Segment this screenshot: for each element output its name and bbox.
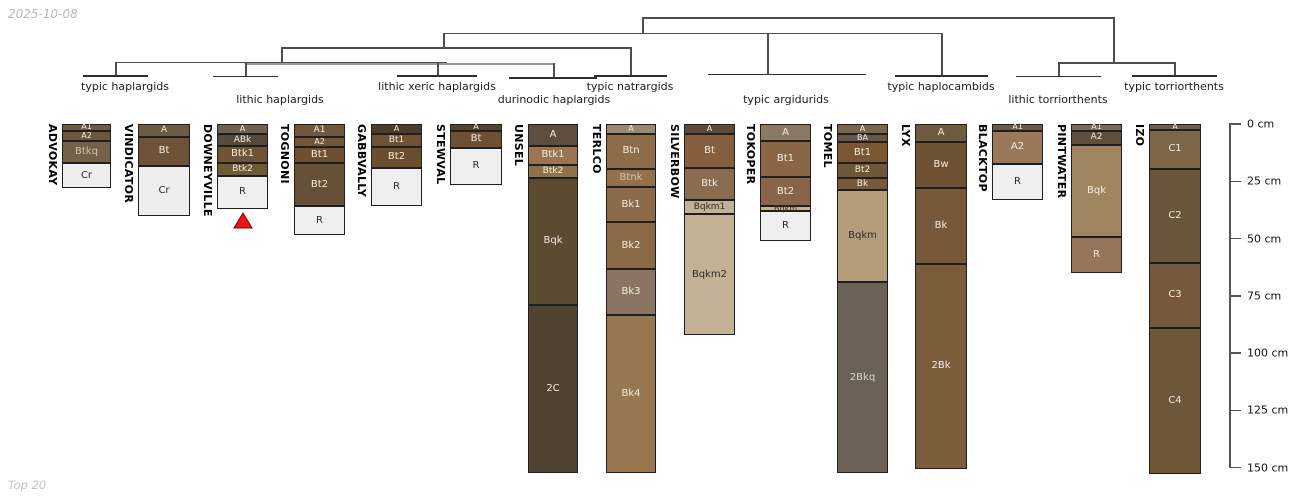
horizon-label: BA [857,134,868,142]
horizon-label: Bt2 [777,187,794,197]
horizon-TERLCO-Bk2: Bk2 [606,222,656,269]
horizon-label: Bqk [544,236,563,246]
column-name-TOGNONI: TOGNONI [278,124,291,184]
horizon-GABBVALLY-R: R [371,168,422,207]
horizon-PINTWATER-Bqk: Bqk [1071,145,1122,238]
dendrogram-link-h-2 [281,47,630,49]
horizon-GABBVALLY-Bt1: Bt1 [371,134,422,147]
horizon-label: A [394,125,399,133]
horizon-IZO-C3: C3 [1149,263,1201,328]
horizon-STEWVAL-A: A [450,124,502,131]
horizon-PINTWATER-A2: A2 [1071,131,1122,145]
horizon-label: Cr [81,171,92,181]
dendrogram-link-h-1 [245,63,553,65]
horizon-label: C4 [1168,396,1181,406]
horizon-label: A [161,126,167,135]
horizon-label: R [782,221,789,231]
horizon-label: Bk4 [621,389,640,399]
horizon-SILVERBOW-Bqkm1: Bqkm1 [684,200,735,215]
horizon-label: R [316,216,323,226]
horizon-label: A [782,128,789,138]
horizon-TOMEL-Bqkm: Bqkm [837,190,888,282]
horizon-DOWNEYVILLE-A: A [217,124,268,134]
horizon-label: A1 [1012,123,1023,131]
horizon-BLACKTOP-A2: A2 [992,131,1043,164]
dendrogram-link-h-5 [1058,62,1174,64]
horizon-TOKOPER-Bt1: Bt1 [760,141,811,176]
red-triangle-marker [233,212,253,229]
horizon-TOKOPER-R: R [760,211,811,241]
group-label-lithic-torriorthents: lithic torriorthents [1008,93,1107,106]
horizon-label: Btkq [75,147,98,157]
group-overline-4 [594,75,667,77]
dendrogram-link-v-11 [1058,62,1060,76]
horizon-label: R [1014,177,1021,187]
depth-axis-tick-0 [1229,123,1241,125]
horizon-ADVOKAY-A1: A1 [62,124,111,131]
horizon-label: Bqkm [774,205,797,213]
horizon-label: Btk1 [542,150,565,160]
horizon-label: Bt1 [311,150,328,160]
horizon-label: Bt [704,146,715,156]
column-name-VINDICATOR: VINDICATOR [122,124,135,203]
horizon-label: Bw [933,160,948,170]
horizon-TOMEL-Bk: Bk [837,178,888,191]
horizon-TOKOPER-Bt2: Bt2 [760,177,811,207]
horizon-TOMEL-2Bkq: 2Bkq [837,282,888,473]
depth-axis-label-150: 150 cm [1247,461,1288,474]
horizon-TERLCO-Bk3: Bk3 [606,269,656,315]
column-name-STEWVAL: STEWVAL [434,124,447,184]
horizon-label: Bk3 [621,287,640,297]
depth-axis-label-125: 125 cm [1247,404,1288,417]
horizon-label: A1 [1091,123,1102,131]
dendrogram-link-h-4 [642,17,1113,19]
horizon-IZO-C1: C1 [1149,130,1201,169]
horizon-label: Bqk [1087,186,1106,196]
horizon-label: 2Bkq [850,373,875,383]
dendrogram-link-v-1 [245,63,247,76]
horizon-label: R [473,161,480,171]
horizon-STEWVAL-R: R [450,148,502,185]
horizon-SILVERBOW-Bqkm2: Bqkm2 [684,214,735,334]
horizon-TOMEL-BA: BA [837,134,888,142]
horizon-label: A [628,125,633,133]
horizon-VINDICATOR-Cr: Cr [138,166,190,215]
horizon-LYX-2Bk: 2Bk [915,264,967,469]
group-label-typic-natrargids: typic natrargids [587,80,674,93]
horizon-label: Bk [857,180,868,189]
horizon-GABBVALLY-A: A [371,124,422,134]
depth-axis-tick-150 [1229,467,1241,469]
depth-axis-label-75: 75 cm [1247,289,1281,302]
horizon-label: Bk2 [621,241,640,251]
dendrogram-link-v-6 [443,33,445,48]
horizon-label: Bt1 [854,148,871,158]
horizon-label: 2Bk [931,361,950,371]
horizon-label: A2 [1091,133,1103,142]
horizon-label: Btn [622,146,639,156]
horizon-label: Bt [159,146,170,156]
group-label-typic-haplocambids: typic haplocambids [887,80,994,93]
dendrogram-link-v-5 [281,47,283,62]
horizon-BLACKTOP-A1: A1 [992,124,1043,131]
horizon-label: 2C [546,384,559,394]
horizon-SILVERBOW-A: A [684,124,735,134]
horizon-TOGNONI-A1: A1 [294,124,345,137]
horizon-label: Bqkm [848,231,877,241]
column-name-PINTWATER: PINTWATER [1055,124,1068,198]
horizon-label: A [707,125,712,133]
dendrogram-link-h-3 [443,33,941,35]
horizon-TERLCO-Bk1: Bk1 [606,187,656,222]
horizon-label: C3 [1168,290,1181,300]
horizon-label: Cr [158,186,169,196]
horizon-UNSEL-Bqk: Bqk [528,178,578,305]
horizon-label: Btk2 [232,165,253,174]
horizon-label: A1 [314,126,326,135]
horizon-IZO-C4: C4 [1149,328,1201,475]
horizon-label: Btk1 [231,149,254,159]
date-label: 2025-10-08 [8,7,78,21]
horizon-label: A [240,125,245,133]
group-label-typic-haplargids: typic haplargids [81,80,169,93]
group-overline-6 [895,75,988,77]
horizon-label: A [860,125,865,133]
group-label-typic-torriorthents: typic torriorthents [1124,80,1224,93]
horizon-LYX-A: A [915,124,967,142]
dendrogram-link-v-9 [642,17,644,33]
horizon-SILVERBOW-Bt: Bt [684,134,735,167]
group-label-lithic-xeric-haplargids: lithic xeric haplargids [378,80,496,93]
depth-axis-tick-100 [1229,352,1241,354]
horizon-TOGNONI-Bt1: Bt1 [294,147,345,163]
horizon-label: R [393,182,400,192]
dendrogram-link-v-12 [1174,62,1176,76]
horizon-TOKOPER-A: A [760,124,811,141]
horizon-label: Bk [935,221,948,231]
horizon-STEWVAL-Bt: Bt [450,131,502,148]
column-name-SILVERBOW: SILVERBOW [668,124,681,199]
horizon-BLACKTOP-R: R [992,164,1043,199]
group-overline-3 [509,77,597,79]
horizon-PINTWATER-R: R [1071,237,1122,272]
horizon-label: C2 [1168,211,1181,221]
group-label-typic-argidurids: typic argidurids [743,93,829,106]
horizon-label: Bt1 [777,154,794,164]
horizon-label: Bt [471,134,482,144]
horizon-ADVOKAY-Cr: Cr [62,163,111,188]
group-overline-0 [83,75,148,77]
horizon-label: C1 [1168,144,1181,154]
horizon-TOMEL-Bt2: Bt2 [837,163,888,178]
column-name-BLACKTOP: BLACKTOP [976,124,989,192]
horizon-VINDICATOR-Bt: Bt [138,137,190,167]
horizon-label: A [1172,123,1177,131]
column-name-ADVOKAY: ADVOKAY [46,124,59,185]
horizon-label: Btk [701,179,718,189]
footer-label: Top 20 [8,478,46,492]
depth-axis-tick-25 [1229,181,1241,183]
horizon-UNSEL-A: A [528,124,578,146]
horizon-TOGNONI-Bt2: Bt2 [294,163,345,207]
horizon-GABBVALLY-Bt2: Bt2 [371,147,422,168]
group-overline-1 [213,76,278,78]
depth-axis-tick-75 [1229,295,1241,297]
column-name-TERLCO: TERLCO [590,124,603,174]
column-name-GABBVALLY: GABBVALLY [355,124,368,197]
dendrogram-link-v-3 [553,63,555,77]
group-label-durinodic-haplargids: durinodic haplargids [498,93,610,106]
horizon-label: A2 [314,138,325,146]
horizon-label: Bt1 [389,136,404,145]
horizon-label: Btnk [620,173,643,183]
depth-axis-tick-50 [1229,238,1241,240]
soil-taxonomy-profile-figure: 2025-10-08 typic haplargidslithic haplar… [0,0,1300,500]
horizon-label: Bt2 [311,180,328,190]
horizon-ADVOKAY-Btkq: Btkq [62,141,111,163]
dendrogram-link-v-0 [115,62,117,76]
group-overline-8 [1132,75,1217,77]
column-name-DOWNEYVILLE: DOWNEYVILLE [201,124,214,217]
horizon-TOGNONI-A2: A2 [294,137,345,147]
horizon-LYX-Bw: Bw [915,142,967,188]
horizon-DOWNEYVILLE-Btk2: Btk2 [217,163,268,176]
horizon-TOGNONI-R: R [294,206,345,235]
depth-axis-tick-125 [1229,410,1241,412]
horizon-label: A2 [1011,142,1024,152]
horizon-label: A2 [81,132,92,140]
horizon-label: Bk1 [621,200,640,210]
horizon-TOMEL-Bt1: Bt1 [837,142,888,163]
column-name-TOMEL: TOMEL [821,124,834,168]
horizon-label: Bqkm1 [694,203,726,212]
column-name-TOKOPER: TOKOPER [744,124,757,184]
horizon-VINDICATOR-A: A [138,124,190,137]
horizon-label: A [938,128,945,138]
dendrogram-link-v-8 [941,33,943,76]
horizon-TERLCO-Btn: Btn [606,134,656,168]
horizon-label: ABk [234,136,252,145]
horizon-DOWNEYVILLE-R: R [217,176,268,209]
horizon-label: A [550,130,557,140]
horizon-UNSEL-2C: 2C [528,305,578,473]
group-overline-7 [1016,76,1101,78]
horizon-label: Btk2 [543,167,564,176]
column-name-IZO: IZO [1133,124,1146,146]
horizon-label: R [1093,250,1100,260]
horizon-label: Bqkm2 [692,270,727,280]
group-label-lithic-haplargids: lithic haplargids [236,93,324,106]
group-overline-5 [708,74,866,76]
dendrogram-link-v-10 [1113,17,1115,62]
horizon-TERLCO-Bk4: Bk4 [606,315,656,473]
horizon-DOWNEYVILLE-Btk1: Btk1 [217,146,268,163]
group-overline-2 [397,75,477,77]
horizon-UNSEL-Btk1: Btk1 [528,146,578,165]
horizon-label: R [239,187,246,197]
horizon-DOWNEYVILLE-ABk: ABk [217,134,268,145]
horizon-label: A [473,123,478,131]
depth-axis-label-100: 100 cm [1247,347,1288,360]
depth-axis-label-50: 50 cm [1247,232,1281,245]
column-name-UNSEL: UNSEL [512,124,525,166]
dendrogram-link-v-4 [630,47,632,76]
horizon-PINTWATER-A1: A1 [1071,124,1122,131]
horizon-TERLCO-Btnk: Btnk [606,169,656,187]
dendrogram-link-v-7 [767,33,769,75]
horizon-ADVOKAY-A2: A2 [62,131,111,141]
depth-axis-label-25: 25 cm [1247,175,1281,188]
horizon-TERLCO-A: A [606,124,656,134]
horizon-label: Bt2 [855,166,870,175]
horizon-LYX-Bk: Bk [915,188,967,264]
horizon-label: Bt2 [388,152,405,162]
depth-axis-label-0: 0 cm [1247,118,1274,131]
column-name-LYX: LYX [899,124,912,147]
horizon-UNSEL-Btk2: Btk2 [528,165,578,178]
dendrogram-link-v-2 [437,62,439,76]
horizon-SILVERBOW-Btk: Btk [684,168,735,200]
horizon-IZO-C2: C2 [1149,169,1201,263]
